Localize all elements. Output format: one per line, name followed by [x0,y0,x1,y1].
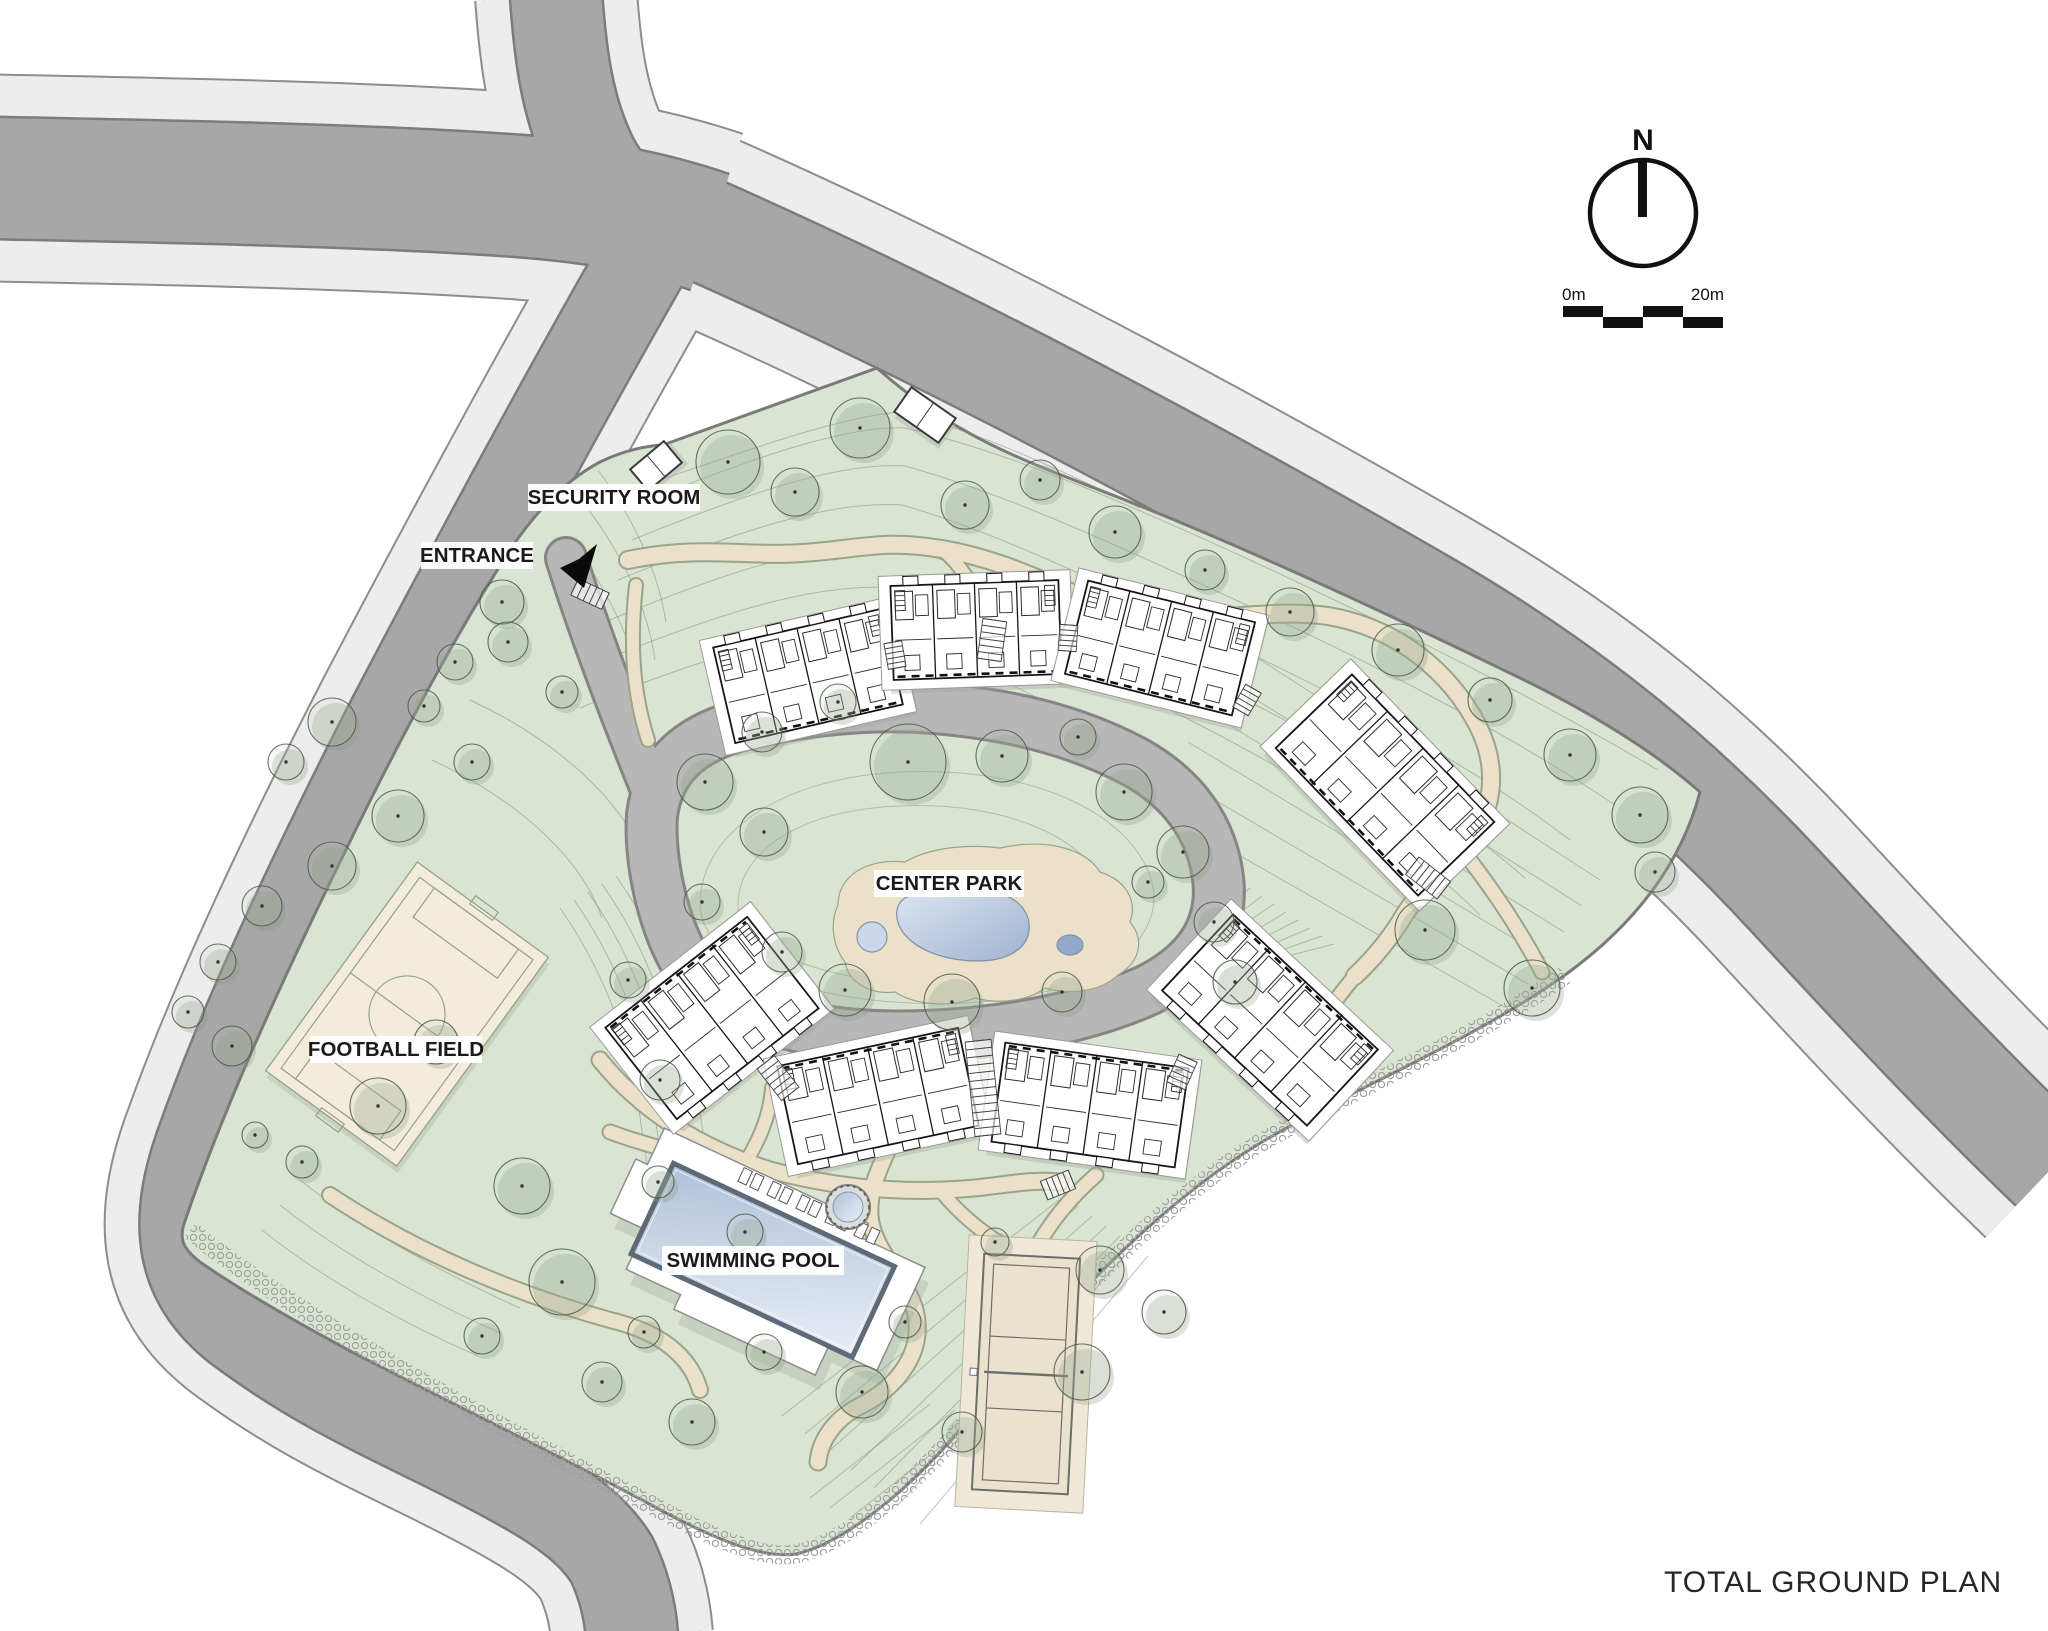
label-swimming-pool: SWIMMING POOL [666,1249,839,1272]
label-football-field: FOOTBALL FIELD [308,1038,484,1061]
stairs [1058,624,1078,651]
compass-north-label: N [1632,124,1654,157]
scale-bar: 0m 20m [1562,285,1724,328]
kids-pool [826,1185,870,1229]
tree [1142,1290,1190,1339]
site-plan-drawing: SECURITY ROOM ENTRANCE CENTER PARK FOOTB… [0,0,2048,1631]
label-security-room: SECURITY ROOM [528,486,701,509]
north-compass-icon: N [1590,124,1696,266]
scale-start-label: 0m [1562,285,1586,304]
stairs [884,641,906,670]
stairs [977,619,1006,662]
park-small-pond [1057,935,1083,955]
label-entrance: ENTRANCE [420,544,534,567]
label-center-park: CENTER PARK [876,872,1023,895]
ground-plan-page: SECURITY ROOM ENTRANCE CENTER PARK FOOTB… [0,0,2048,1631]
scale-end-label: 20m [1691,285,1724,304]
park-small-pond [857,922,887,952]
building-slab [878,570,1075,695]
page-title: TOTAL GROUND PLAN [1664,1566,2002,1599]
